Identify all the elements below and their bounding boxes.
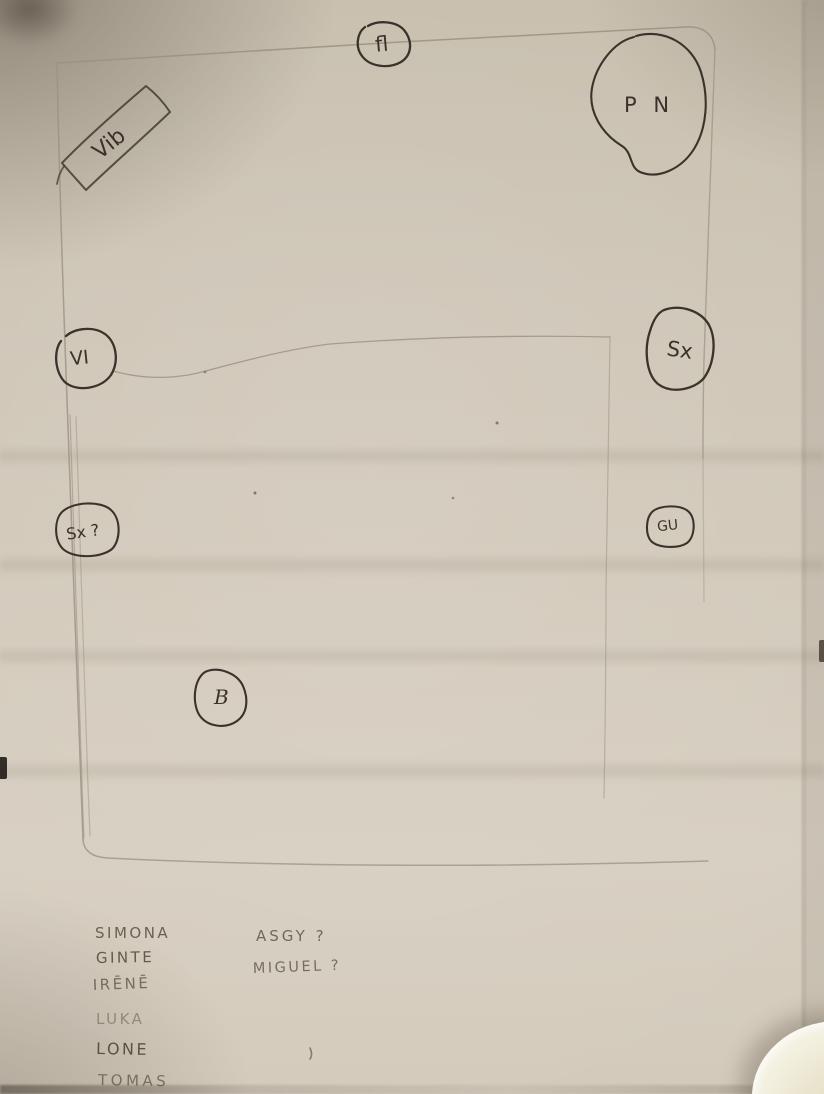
inner-area-left-line-b (76, 417, 90, 836)
pencil-lines-group (57, 27, 715, 1059)
pencil-dot (204, 371, 207, 374)
piano-label: P N (624, 93, 674, 117)
bass-label: B (213, 685, 229, 709)
vibraphone-label: Vib (88, 123, 131, 164)
stray-comma-mark (310, 1048, 312, 1059)
names-group: SIMONA GINTE IRĒNĒ LUKA LONE TOMAS ASGY … (93, 924, 342, 1090)
name-luka: LUKA (96, 1010, 144, 1028)
violin-label: VI (69, 346, 90, 370)
sax-right-label: Sx (665, 336, 694, 363)
guitar-label: GU (656, 517, 679, 535)
stage-outline-left (57, 63, 83, 840)
name-ginte: GINTE (96, 948, 155, 967)
instrument-labels-group: fl P N Vib VI Sx Sx ? GU B (65, 32, 694, 709)
photo-of-stage-sketch: fl P N Vib VI Sx Sx ? GU B SIMONA GINTE … (0, 0, 824, 1094)
name-asgy: ASGY ? (256, 927, 327, 945)
inner-area-top-line (113, 336, 610, 377)
stage-outline-bottom (83, 840, 708, 865)
name-miguel: MIGUEL ? (253, 958, 342, 977)
name-tomas: TOMAS (97, 1071, 170, 1090)
name-simona: SIMONA (95, 924, 170, 942)
inner-area-left-line-a (70, 415, 84, 838)
pencil-dot (452, 497, 455, 500)
pencil-dot (254, 492, 257, 495)
inner-area-right-line (604, 337, 610, 798)
sketch-svg: fl P N Vib VI Sx Sx ? GU B SIMONA GINTE … (0, 0, 824, 1094)
stage-outline-right-lower (703, 458, 704, 602)
sax-left-label: Sx ? (65, 520, 101, 543)
name-irene: IRĒNĒ (93, 974, 151, 994)
ink-shapes-group (56, 22, 713, 726)
pencil-dot (496, 422, 499, 425)
name-lone: LONE (96, 1039, 149, 1059)
flute-label: fl (374, 32, 389, 57)
